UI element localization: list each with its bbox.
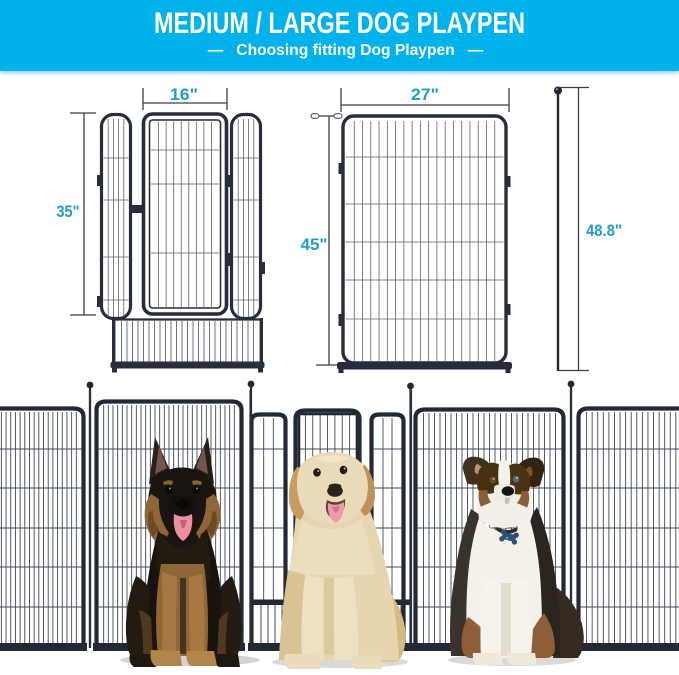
svg-text:48.8": 48.8"	[586, 221, 622, 240]
svg-text:45": 45"	[301, 235, 328, 254]
svg-text:35": 35"	[57, 202, 80, 221]
svg-text:16": 16"	[170, 85, 198, 104]
svg-text:27": 27"	[411, 85, 439, 104]
